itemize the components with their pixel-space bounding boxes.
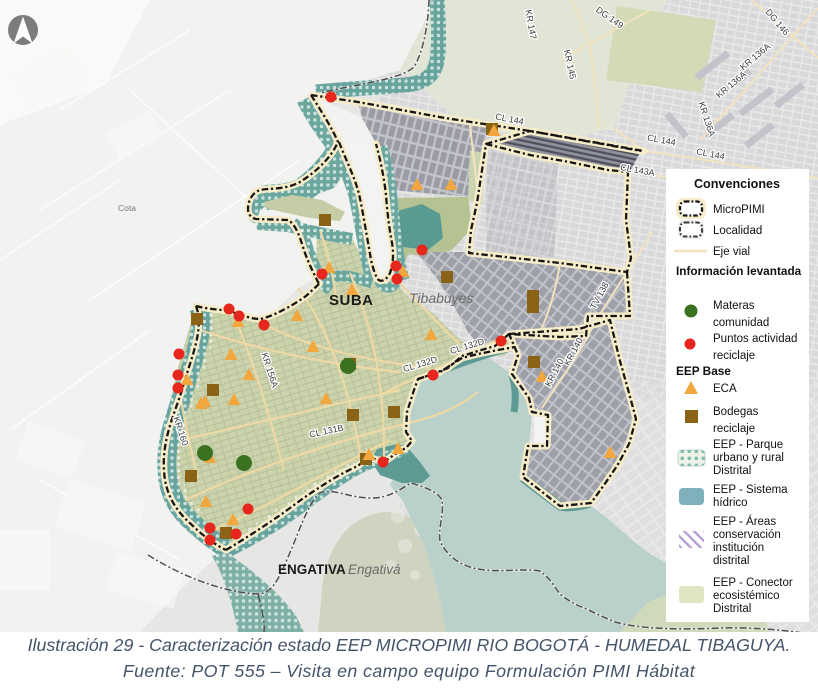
- svg-text:Distrital: Distrital: [713, 465, 751, 477]
- svg-text:Eje vial: Eje vial: [713, 246, 750, 258]
- svg-text:Convenciones: Convenciones: [694, 177, 780, 191]
- svg-text:ecosistémico: ecosistémico: [713, 590, 779, 602]
- svg-text:reciclaje: reciclaje: [713, 423, 755, 435]
- svg-text:EEP - Áreas: EEP - Áreas: [713, 515, 776, 528]
- svg-text:comunidad: comunidad: [713, 317, 769, 329]
- svg-text:Bodegas: Bodegas: [713, 406, 759, 418]
- svg-text:urbano y rural: urbano y rural: [713, 452, 784, 464]
- svg-text:Distrital: Distrital: [713, 603, 751, 615]
- svg-text:conservación: conservación: [713, 529, 781, 541]
- svg-text:Tibabuyes: Tibabuyes: [409, 290, 473, 306]
- svg-text:Información levantada: Información levantada: [676, 264, 802, 278]
- svg-text:EEP - Parque: EEP - Parque: [713, 439, 783, 451]
- svg-text:ECA: ECA: [713, 383, 737, 395]
- svg-text:ENGATIVA: ENGATIVA: [278, 562, 346, 577]
- svg-text:EEP - Sistema: EEP - Sistema: [713, 484, 788, 496]
- svg-text:SUBA: SUBA: [329, 292, 374, 309]
- svg-text:MicroPIMI: MicroPIMI: [713, 204, 765, 216]
- svg-text:hídrico: hídrico: [713, 497, 748, 509]
- svg-text:Engativá: Engativá: [348, 562, 401, 577]
- svg-text:distrital: distrital: [713, 555, 749, 567]
- svg-text:EEP - Conector: EEP - Conector: [713, 577, 793, 589]
- svg-text:Puntos actividad: Puntos actividad: [713, 333, 797, 345]
- svg-text:reciclaje: reciclaje: [713, 350, 755, 362]
- svg-text:Localidad: Localidad: [713, 225, 762, 237]
- svg-text:institución: institución: [713, 542, 764, 554]
- svg-text:EEP Base: EEP Base: [676, 364, 731, 378]
- svg-text:Materas: Materas: [713, 300, 755, 312]
- svg-text:Cota: Cota: [118, 203, 136, 213]
